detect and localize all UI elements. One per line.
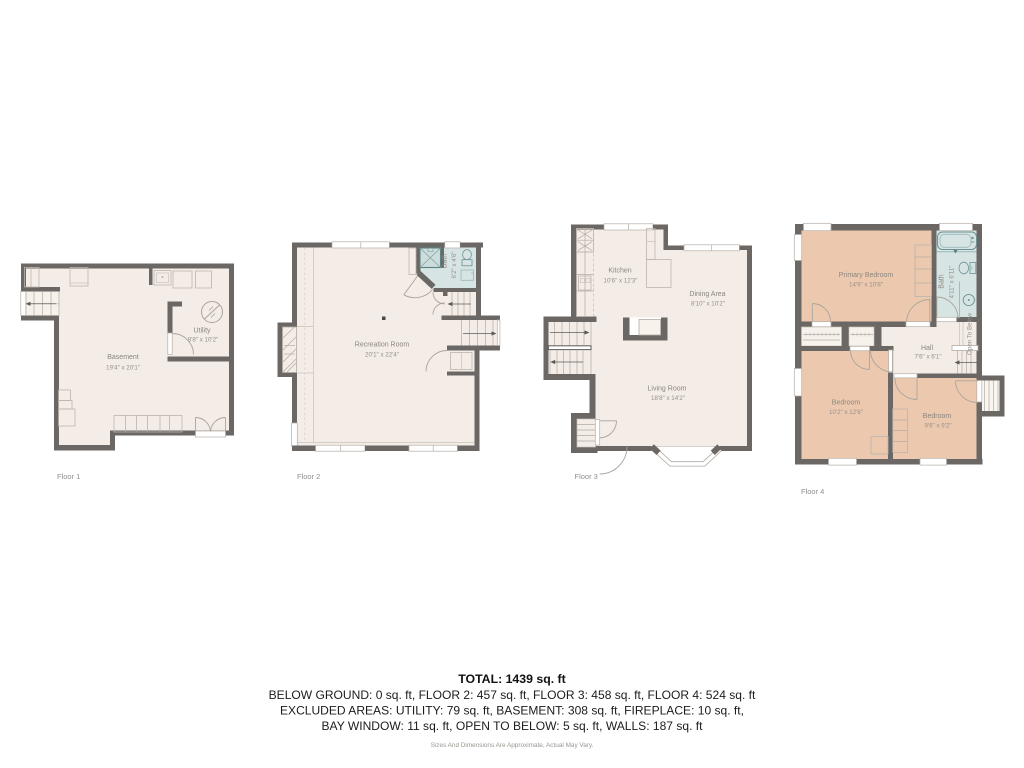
svg-text:Hall: Hall: [921, 345, 934, 352]
svg-text:10'6" x 12'3": 10'6" x 12'3": [604, 278, 638, 285]
svg-text:Floor 1: Floor 1: [57, 472, 80, 481]
svg-text:19'4" x 20'1": 19'4" x 20'1": [106, 365, 140, 372]
svg-text:18'8" x 14'2": 18'8" x 14'2": [651, 395, 685, 402]
svg-text:6'2" x 4'6": 6'2" x 4'6": [451, 251, 458, 278]
svg-text:Living Room: Living Room: [648, 386, 687, 393]
svg-text:8'10" x 10'2": 8'10" x 10'2": [691, 301, 725, 308]
svg-text:9'6" x 9'2": 9'6" x 9'2": [924, 423, 951, 430]
svg-text:7'6" x 6'1": 7'6" x 6'1": [914, 354, 941, 361]
svg-text:Bath: Bath: [939, 274, 946, 289]
svg-text:10'2" x 12'6": 10'2" x 12'6": [829, 409, 863, 416]
svg-text:Bedroom: Bedroom: [923, 413, 952, 420]
svg-text:8'8" x 10'2": 8'8" x 10'2": [188, 337, 219, 344]
svg-text:Bath: Bath: [442, 254, 449, 269]
svg-text:Basement: Basement: [107, 354, 139, 361]
svg-text:Sizes And Dimensions Are Appro: Sizes And Dimensions Are Approximate, Ac…: [431, 742, 594, 749]
svg-text:Utility: Utility: [193, 328, 211, 335]
svg-text:TOTAL: 1439 sq. ft: TOTAL: 1439 sq. ft: [458, 672, 566, 686]
svg-text:BELOW GROUND: 0 sq. ft, FLOOR: BELOW GROUND: 0 sq. ft, FLOOR 2: 457 sq.…: [269, 688, 756, 702]
svg-text:Primary Bedroom: Primary Bedroom: [839, 272, 894, 279]
svg-text:Recreation Room: Recreation Room: [355, 342, 410, 349]
svg-text:Open To Below: Open To Below: [967, 313, 974, 355]
svg-text:Dining Area: Dining Area: [689, 291, 725, 298]
svg-text:Kitchen: Kitchen: [608, 268, 631, 275]
svg-text:Bedroom: Bedroom: [832, 400, 861, 407]
svg-text:Floor 3: Floor 3: [575, 472, 598, 481]
svg-text:20'1" x 22'4": 20'1" x 22'4": [365, 352, 399, 359]
svg-text:BAY WINDOW: 11 sq. ft, OPEN TO: BAY WINDOW: 11 sq. ft, OPEN TO BELOW: 5 …: [322, 719, 704, 733]
svg-text:4'11" x 6'11": 4'11" x 6'11": [949, 265, 956, 298]
svg-text:14'9" x 10'8": 14'9" x 10'8": [849, 282, 883, 289]
svg-text:EXCLUDED AREAS: UTILITY: 79 sq: EXCLUDED AREAS: UTILITY: 79 sq. ft, BASE…: [280, 704, 744, 718]
svg-text:Floor 2: Floor 2: [297, 472, 320, 481]
svg-text:Floor 4: Floor 4: [801, 487, 824, 496]
